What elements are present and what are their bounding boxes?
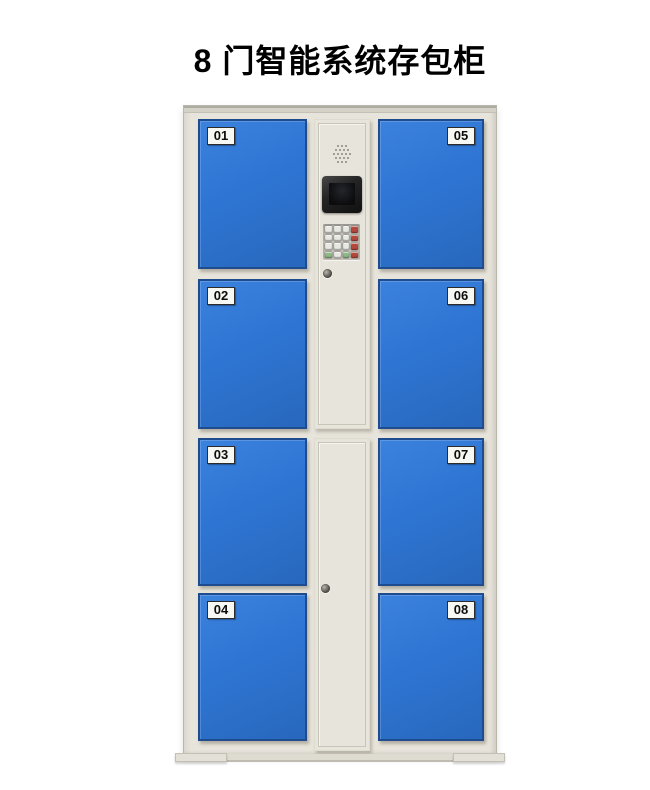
- page-title: 8 门智能系统存包柜: [194, 36, 487, 82]
- locker-door-04: 04: [198, 593, 307, 741]
- display-screen: [322, 176, 362, 213]
- locker-door-07: 07: [378, 438, 484, 586]
- keypad-key-grey: [325, 226, 332, 233]
- door-number-tag: 02: [207, 287, 235, 305]
- keypad: [323, 224, 360, 260]
- lock-icon-lower: [321, 584, 330, 593]
- locker-cabinet: 01 02 03 04 05 06 07 08: [183, 105, 497, 755]
- keypad-key-red: [351, 252, 358, 259]
- keypad-key-grey: [343, 243, 350, 250]
- cabinet-foot-left: [175, 753, 227, 762]
- door-number-tag: 04: [207, 601, 235, 619]
- keypad-key-grey: [325, 243, 332, 250]
- locker-door-02: 02: [198, 279, 307, 429]
- cabinet-top-lid: [184, 106, 496, 113]
- keypad-key-red: [351, 243, 358, 250]
- door-number-tag: 05: [447, 127, 475, 145]
- product-image: 8 门智能系统存包柜 01 02 03 04 05 06 07 08: [0, 0, 650, 790]
- door-number-tag: 06: [447, 287, 475, 305]
- speaker-grille-icon: [341, 153, 343, 155]
- keypad-key-grey: [334, 252, 341, 259]
- locker-door-05: 05: [378, 119, 484, 269]
- locker-door-06: 06: [378, 279, 484, 429]
- keypad-key-red: [351, 226, 358, 233]
- locker-door-08: 08: [378, 593, 484, 741]
- locker-door-01: 01: [198, 119, 307, 269]
- keypad-key-green: [325, 252, 332, 259]
- door-number-tag: 08: [447, 601, 475, 619]
- keypad-key-grey: [334, 243, 341, 250]
- keypad-key-grey: [334, 226, 341, 233]
- keypad-key-grey: [334, 235, 341, 242]
- screen-glass: [329, 183, 355, 205]
- locker-door-03: 03: [198, 438, 307, 586]
- keypad-key-red: [351, 235, 358, 242]
- door-number-tag: 03: [207, 446, 235, 464]
- keypad-key-grey: [325, 235, 332, 242]
- keypad-key-grey: [343, 226, 350, 233]
- door-number-tag: 01: [207, 127, 235, 145]
- keypad-key-grey: [343, 235, 350, 242]
- cabinet-foot-right: [453, 753, 505, 762]
- door-number-tag: 07: [447, 446, 475, 464]
- control-panel-lower: [314, 438, 370, 751]
- keypad-key-green: [343, 252, 350, 259]
- control-panel-upper: [314, 119, 370, 429]
- lock-icon-upper: [323, 269, 332, 278]
- cabinet-base: [196, 754, 484, 762]
